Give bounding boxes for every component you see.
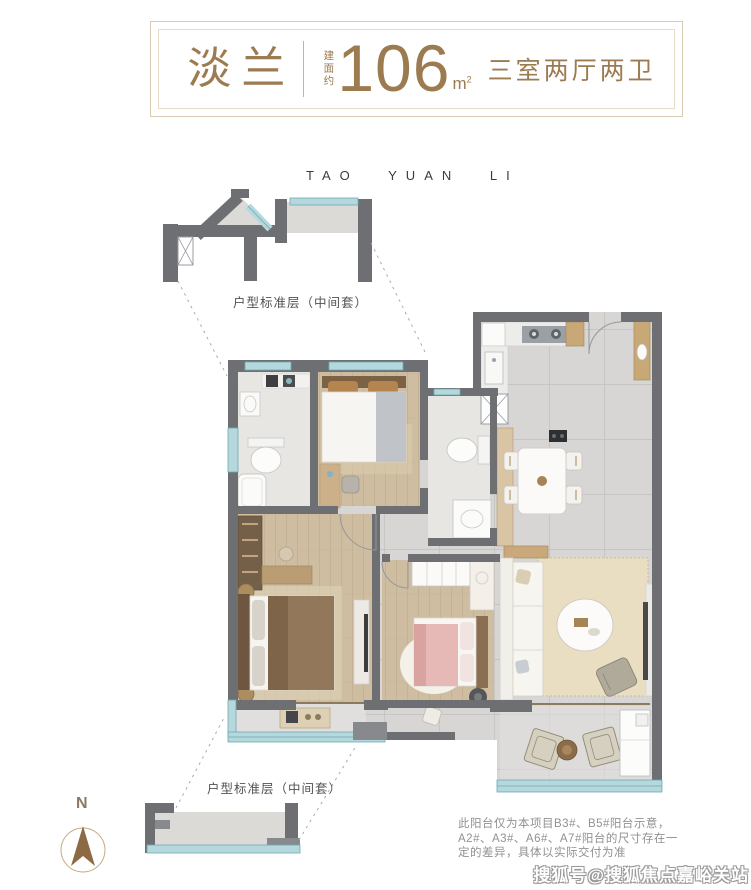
floor-label-top: 户型标准层（中间套）: [233, 292, 368, 311]
compass-arrow-icon: [71, 826, 95, 866]
balcony-detail-bottom: [145, 803, 300, 853]
disclaimer-line-2: A2#、A3#、A6#、A7#阳台的尺寸存在一: [458, 832, 678, 847]
header-divider: [303, 41, 304, 97]
project-name: TAO YUAN LI: [306, 168, 519, 183]
area-prefix: 建面约: [322, 50, 334, 88]
disclaimer: 此阳台仅为本项目B3#、B5#阳台示意， A2#、A3#、A6#、A7#阳台的尺…: [458, 817, 678, 861]
disclaimer-line-1: 此阳台仅为本项目B3#、B5#阳台示意，: [458, 817, 678, 832]
area-value: 106: [337, 39, 450, 98]
header-card: 淡兰 建面约 106 m2 三室两厅两卫: [150, 21, 683, 117]
disclaimer-line-3: 定的差异，具体以实际交付为准: [458, 846, 678, 861]
floor-plan-canvas: [0, 0, 751, 890]
plan-title: 淡兰: [187, 47, 295, 91]
area-unit-m: m: [452, 74, 466, 93]
compass: [61, 826, 105, 872]
area-unit-sup: 2: [467, 74, 472, 84]
header-inner-border: 淡兰 建面约 106 m2 三室两厅两卫: [158, 29, 675, 109]
area-unit: m2: [452, 74, 471, 94]
layout-description: 三室两厅两卫: [488, 51, 656, 87]
main-floor-plan: [228, 312, 662, 792]
balcony-detail-top: [163, 189, 372, 282]
sohu-watermark: 搜狐号@搜狐焦点嘉峪关站: [533, 861, 749, 886]
floor-label-bottom: 户型标准层（中间套）: [207, 778, 342, 797]
north-label: N: [76, 795, 88, 813]
entry: [634, 318, 650, 380]
